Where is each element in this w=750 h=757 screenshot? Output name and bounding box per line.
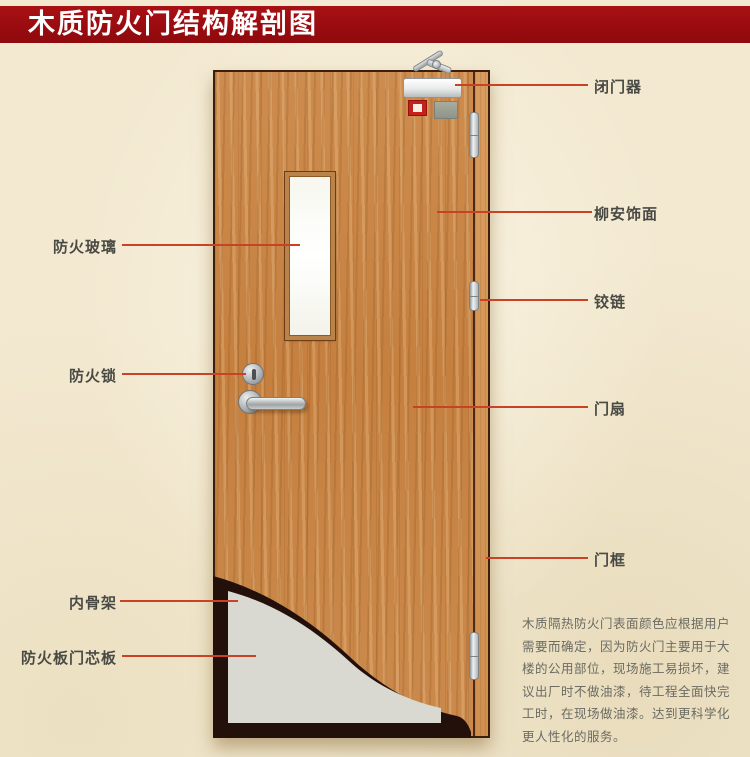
label-door-frame: 门框 [594,549,626,570]
label-veneer: 柳安饰面 [594,203,658,224]
door-leaf-leader-line [413,406,588,408]
hinge-leader-line [480,299,588,301]
fire-safety-sign [408,100,427,116]
description-line: 木质隔热防火门表面颜色应根据用户 [522,613,750,636]
door-closer-leader-line [455,84,588,86]
fire-door-illustration [213,70,490,738]
label-core-panel: 防火板门芯板 [21,647,117,668]
door-handle-lever [246,397,306,410]
page: 木质防火门结构解剖图 防火玻璃 防火锁 内骨架 防火板门芯板 [0,0,750,757]
label-door-leaf: 门扇 [594,398,626,419]
label-hinge: 铰链 [594,291,626,312]
description-line: 需要而确定，因为防火门主要用于大 [522,636,750,659]
keyhole-slot-icon [252,369,256,380]
label-inner-skeleton: 内骨架 [69,592,117,613]
fire-core-panel-layer [228,591,441,723]
fire-lock-leader-line [122,373,246,375]
core-panel-leader-line [122,655,256,657]
inner-skeleton-leader-line [120,600,238,602]
fire-glass-window [285,172,335,340]
fire-safety-sign-inner [413,104,422,112]
title-banner: 木质防火门结构解剖图 [0,6,750,43]
corner-cutaway [213,560,475,738]
hinge-middle [469,281,479,311]
label-fire-lock: 防火锁 [69,365,117,386]
page-title: 木质防火门结构解剖图 [28,10,318,40]
product-description: 木质隔热防火门表面颜色应根据用户 需要而确定，因为防火门主要用于大 楼的公用部位… [522,613,750,748]
label-fire-glass: 防火玻璃 [53,236,117,257]
door-closer-joint [432,60,441,69]
description-line: 工时，在现场做油漆。达到更科学化 [522,703,750,726]
label-door-closer: 闭门器 [594,76,642,97]
hinge-top [469,112,479,158]
veneer-leader-line [437,211,592,213]
fire-glass-leader-line [122,244,300,246]
door-frame-leader-line [486,557,588,559]
description-line: 楼的公用部位，现场施工易损坏，建 [522,658,750,681]
description-line: 议出厂时不做油漆，待工程全面快完 [522,681,750,704]
door-closer-body [403,78,462,98]
label-tag [434,101,458,119]
description-line: 更人性化的服务。 [522,726,750,749]
